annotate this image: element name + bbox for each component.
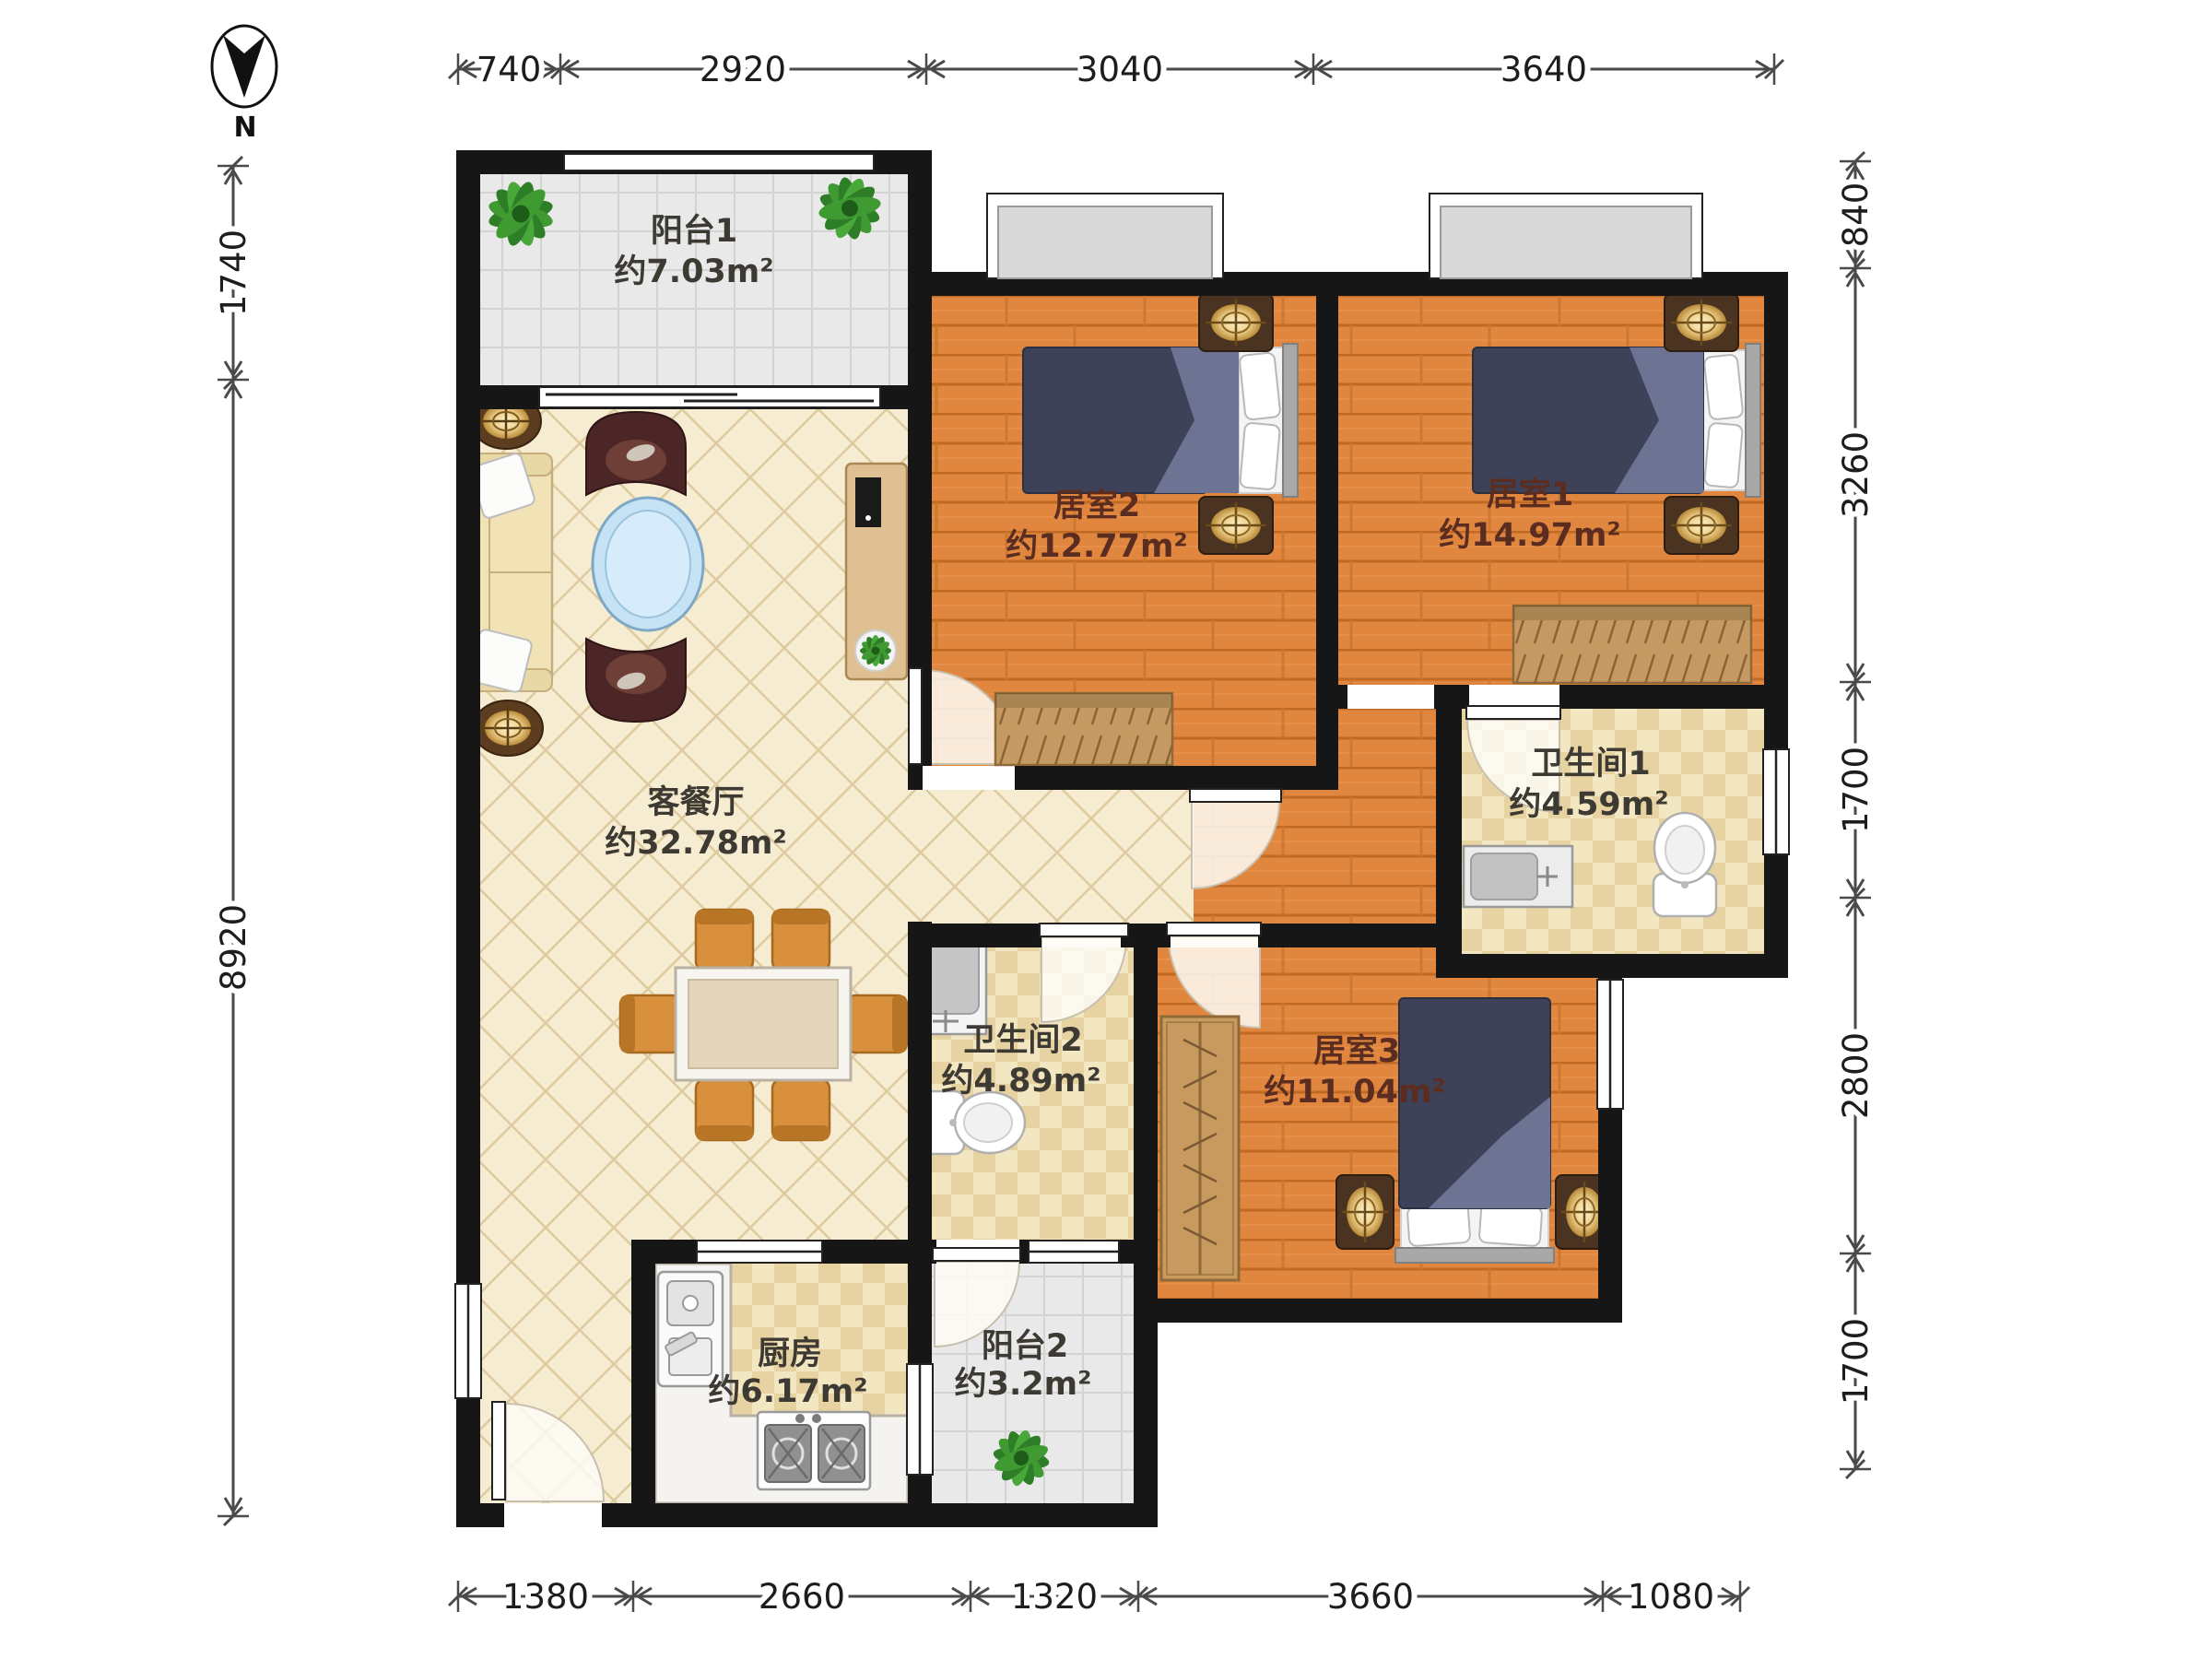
coffee-table <box>593 498 703 630</box>
dim-top-1: 2920 <box>700 50 786 89</box>
bath1-sink <box>1464 846 1572 907</box>
bath2-door-leaf <box>1040 924 1128 936</box>
pillow <box>1704 423 1743 488</box>
armchair <box>586 412 686 495</box>
pillow <box>1704 354 1744 419</box>
living-left-window <box>455 1284 481 1398</box>
headboard <box>1395 1248 1554 1263</box>
toilet-icon <box>922 1091 1025 1154</box>
dim-top-3: 3640 <box>1500 50 1587 89</box>
room-label-kitchen: 厨房 <box>758 1335 822 1372</box>
bedroom2-bay-window <box>987 194 1223 278</box>
room-area-balcony2: 约3.2m² <box>955 1366 1092 1403</box>
room-area-living: 约32.78m² <box>605 825 787 862</box>
bedroom1-bay-window <box>1430 194 1702 278</box>
nightstand-lamp-icon <box>1336 1175 1394 1249</box>
room-area-kitchen: 约6.17m² <box>708 1373 867 1410</box>
tv-cabinet <box>846 464 907 679</box>
room-area-bath1: 约4.59m² <box>1509 786 1668 823</box>
entry-door-leaf <box>492 1402 505 1500</box>
dim-top-0: 740 <box>477 50 542 89</box>
bath1-door-leaf <box>1466 706 1560 719</box>
room-area-bedroom1: 约14.97m² <box>1439 517 1621 554</box>
bath2-window <box>1029 1241 1119 1263</box>
dim-right-4: 1700 <box>1836 1318 1876 1405</box>
dining-chair <box>772 1079 829 1140</box>
floor-plan-page: 阳台1 约7.03m² 居室2 约12.77m² 居室1 约14.97m² 客餐… <box>0 0 2212 1659</box>
dining-chair <box>696 1079 753 1140</box>
room-area-bedroom3: 约11.04m² <box>1264 1074 1446 1111</box>
bedroom3-door-leaf <box>1167 923 1261 935</box>
kitchen-balcony2-window <box>907 1364 933 1475</box>
dim-bottom-4: 1080 <box>1628 1577 1714 1617</box>
pillow <box>1479 1204 1543 1247</box>
room-label-bath2: 卫生间2 <box>963 1022 1082 1059</box>
toilet-icon <box>1653 813 1716 916</box>
pillow <box>1240 422 1280 489</box>
room-label-bedroom1: 居室1 <box>1487 476 1573 513</box>
room-area-bath2: 约4.89m² <box>941 1063 1100 1100</box>
dim-left-0: 1740 <box>214 229 253 316</box>
hallway-floor-upper <box>1338 709 1438 792</box>
dim-left-1: 8920 <box>214 904 253 991</box>
pillow <box>1407 1204 1471 1247</box>
headboard <box>1283 344 1298 497</box>
nightstand-lamp-icon <box>1199 294 1273 351</box>
floor-plan: 阳台1 约7.03m² 居室2 约12.77m² 居室1 约14.97m² 客餐… <box>0 0 2212 1659</box>
room-area-balcony1: 约7.03m² <box>614 253 773 290</box>
dim-top-2: 3040 <box>1077 50 1163 89</box>
room-label-bedroom2: 居室2 <box>1053 487 1140 524</box>
hallway-door-leaf <box>1190 789 1281 802</box>
dim-bottom-2: 1320 <box>1011 1577 1098 1617</box>
floor-lamp-icon <box>473 700 543 756</box>
dim-right-3: 2800 <box>1836 1032 1876 1119</box>
dining-chair <box>846 995 907 1053</box>
dim-right-0: 840 <box>1836 182 1876 248</box>
dining-chair <box>620 995 681 1053</box>
dining-chair <box>696 910 753 971</box>
nightstand-lamp-icon <box>1665 497 1738 554</box>
headboard <box>1746 344 1760 497</box>
compass: N <box>212 26 276 144</box>
dining-chair <box>772 910 829 971</box>
bedroom1-dresser <box>1513 606 1751 683</box>
dimension-line-left <box>218 157 249 1525</box>
balcony1-railing <box>564 154 874 171</box>
bedroom2-door-leaf <box>909 668 922 764</box>
armchair <box>586 639 686 722</box>
nightstand-lamp-icon <box>1665 294 1738 351</box>
bath1-window <box>1763 749 1789 854</box>
dimension-line-bottom <box>449 1581 1749 1612</box>
balcony2-door-leaf <box>933 1248 1020 1261</box>
dim-bottom-1: 2660 <box>759 1577 845 1617</box>
room-label-balcony2: 阳台2 <box>982 1328 1068 1365</box>
dim-bottom-3: 3660 <box>1327 1577 1414 1617</box>
bedroom3-bed <box>1395 998 1554 1263</box>
bedroom2-bed <box>1023 344 1298 497</box>
bedroom1-bed <box>1473 344 1760 497</box>
balcony1-sliding-window <box>539 387 880 407</box>
dim-right-1: 3260 <box>1836 431 1876 518</box>
room-label-living: 客餐厅 <box>647 783 744 821</box>
dim-bottom-0: 1380 <box>502 1577 589 1617</box>
room-label-bedroom3: 居室3 <box>1313 1032 1400 1070</box>
room-label-balcony1: 阳台1 <box>651 213 737 250</box>
bedroom3-window <box>1597 980 1623 1109</box>
bedroom2-dresser <box>995 693 1172 765</box>
room-label-bath1: 卫生间1 <box>1531 746 1650 782</box>
bedroom3-wardrobe <box>1161 1017 1239 1280</box>
nightstand-lamp-icon <box>1199 497 1273 554</box>
pillow <box>1239 352 1280 420</box>
kitchen-window <box>697 1241 822 1263</box>
room-area-bedroom2: 约12.77m² <box>1006 528 1188 565</box>
compass-label: N <box>233 112 256 144</box>
stove-icon <box>758 1412 870 1489</box>
dim-right-2: 1700 <box>1836 747 1876 833</box>
